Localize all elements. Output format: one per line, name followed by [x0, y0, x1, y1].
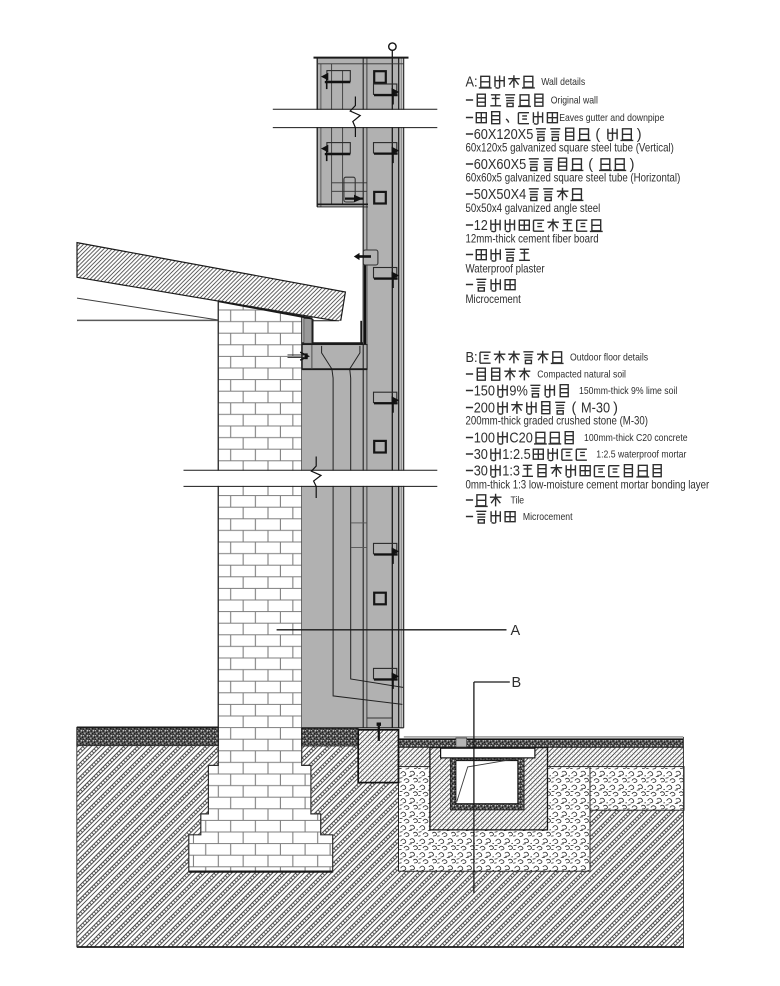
- svg-text:60x60x5 galvanized square stee: 60x60x5 galvanized square steel tube (Ho…: [466, 171, 681, 185]
- svg-text:50x50x4 galvanized angle steel: 50x50x4 galvanized angle steel: [466, 201, 601, 215]
- svg-text:Wall details: Wall details: [541, 77, 585, 88]
- svg-text:Microcement: Microcement: [466, 292, 522, 306]
- svg-text:100mm-thick C20 concrete: 100mm-thick C20 concrete: [584, 433, 688, 444]
- svg-text:Compacted natural soil: Compacted natural soil: [537, 370, 626, 381]
- svg-text:Eaves gutter and downpipe: Eaves gutter and downpipe: [559, 113, 664, 124]
- svg-text:9%: 9%: [509, 384, 527, 400]
- svg-text:30: 30: [474, 447, 488, 463]
- svg-text:A:: A:: [466, 75, 478, 91]
- svg-text:Microcement: Microcement: [523, 512, 573, 523]
- svg-text:Original wall: Original wall: [551, 96, 598, 107]
- svg-text:12mm-thick cement fiber board: 12mm-thick cement fiber board: [466, 232, 599, 246]
- svg-text:Waterproof plaster: Waterproof plaster: [466, 262, 545, 276]
- svg-text:Tile: Tile: [511, 496, 525, 507]
- svg-text:B:: B:: [466, 350, 478, 366]
- svg-text:150mm-thick 9% lime soil: 150mm-thick 9% lime soil: [579, 386, 677, 397]
- svg-text:1:2.5 waterproof mortar: 1:2.5 waterproof mortar: [596, 450, 687, 461]
- svg-text:0mm-thick 1:3 low-moisture cem: 0mm-thick 1:3 low-moisture cement mortar…: [466, 478, 710, 492]
- svg-text:C20: C20: [509, 431, 532, 447]
- svg-text:100: 100: [474, 431, 495, 447]
- svg-text:B: B: [512, 675, 522, 691]
- svg-text:1:2.5: 1:2.5: [502, 447, 530, 463]
- svg-text:A: A: [511, 623, 521, 639]
- svg-text:Outdoor floor details: Outdoor floor details: [570, 353, 648, 364]
- svg-text:200mm-thick graded crushed sto: 200mm-thick graded crushed stone (M-30): [466, 414, 649, 428]
- svg-text:60x120x5 galvanized square ste: 60x120x5 galvanized square steel tube (V…: [466, 141, 674, 155]
- svg-text:150: 150: [474, 384, 495, 400]
